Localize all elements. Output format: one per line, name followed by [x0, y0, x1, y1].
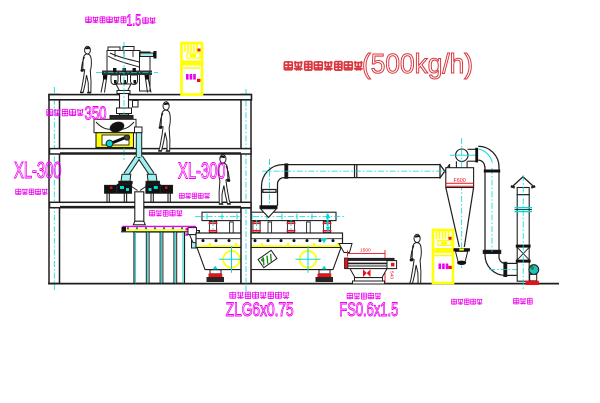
- svg-text:1.5: 1.5: [127, 13, 142, 30]
- svg-text:XL-300: XL-300: [14, 157, 62, 183]
- svg-text:1500: 1500: [360, 248, 371, 254]
- svg-text:(500kg/h): (500kg/h): [362, 48, 473, 79]
- svg-text:XL-300: XL-300: [178, 158, 226, 184]
- svg-text:FS0.6x1.5: FS0.6x1.5: [339, 300, 398, 321]
- svg-text:F600: F600: [454, 178, 466, 184]
- svg-text:540: 540: [389, 271, 395, 279]
- svg-text:ZLG6x0.75: ZLG6x0.75: [226, 300, 294, 321]
- svg-text:350: 350: [85, 104, 107, 124]
